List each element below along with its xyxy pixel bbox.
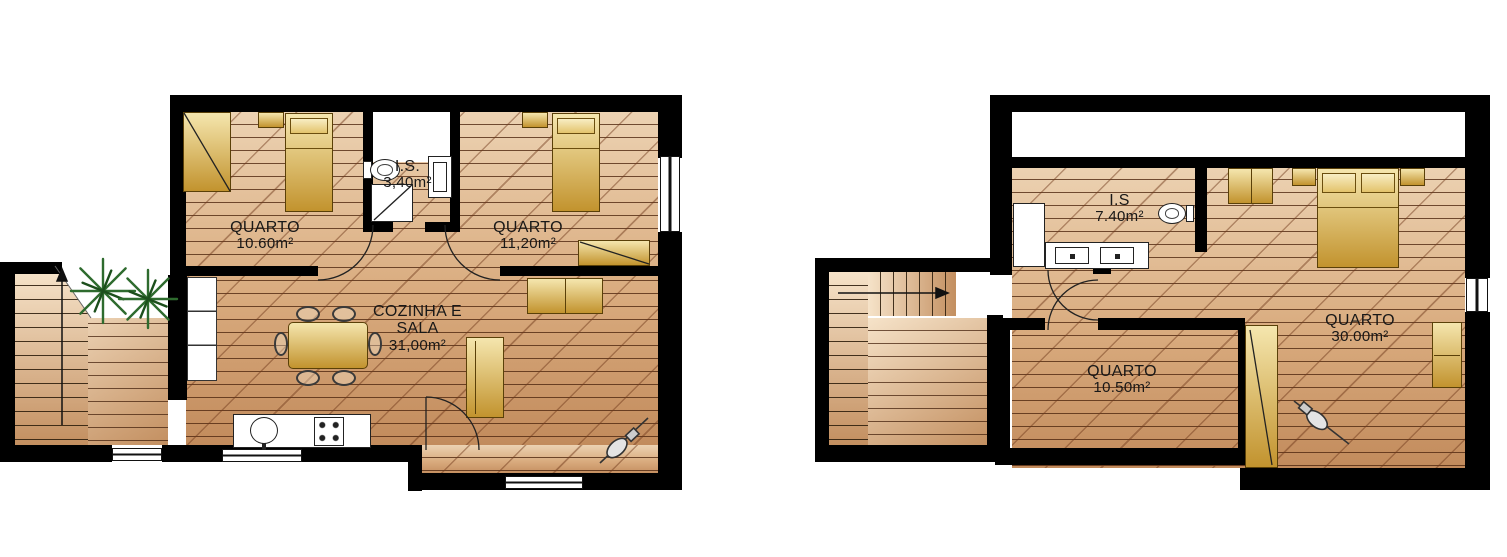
door-arc <box>445 225 500 280</box>
plant-icon <box>119 270 177 328</box>
door-arc <box>1048 270 1098 320</box>
guitar-icon <box>1294 401 1349 444</box>
stairs-direction-arrow <box>838 288 948 298</box>
guitar-icon <box>600 418 648 463</box>
floor-plan-canvas: QUARTO 10.60m² I.S. 3,40m² QUARTO 11,20m… <box>0 0 1507 557</box>
wardrobe-diagonal <box>580 242 649 264</box>
wardrobe-diagonal <box>184 113 230 191</box>
shower-diagonal <box>374 186 411 220</box>
door-arc <box>426 397 479 450</box>
wardrobe-diagonal <box>1250 330 1272 465</box>
line-details <box>0 0 1507 557</box>
plant-icon <box>71 259 135 323</box>
door-arc <box>318 225 373 280</box>
stairs-direction-arrow <box>57 269 67 425</box>
door-arc <box>1048 280 1098 330</box>
